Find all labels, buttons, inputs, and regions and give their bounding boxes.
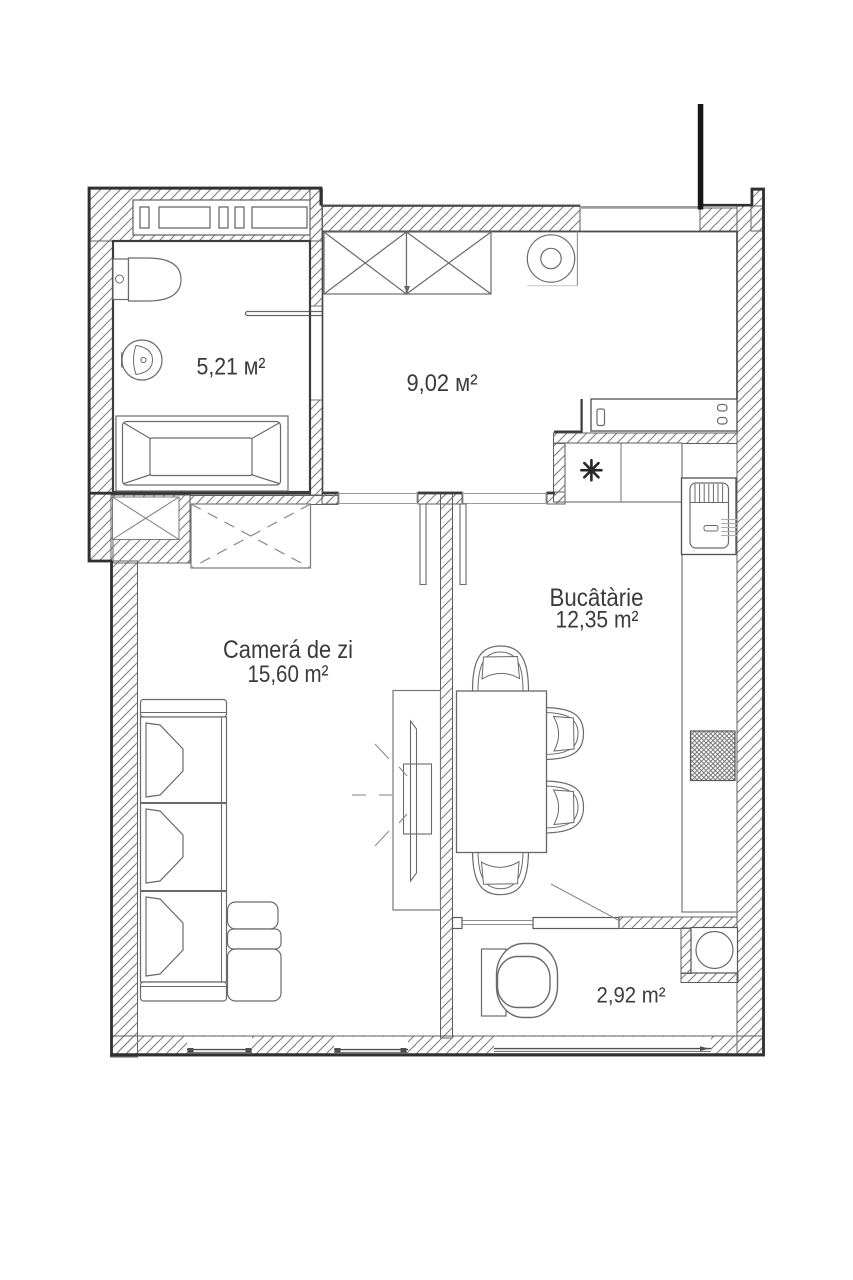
svg-text:5,21 м²: 5,21 м² [197, 354, 266, 381]
svg-text:12,35 m²: 12,35 m² [556, 607, 639, 634]
svg-text:2,92 m²: 2,92 m² [597, 983, 666, 1008]
svg-text:Camerá de zi: Camerá de zi [223, 636, 353, 664]
svg-text:15,60 m²: 15,60 m² [248, 661, 329, 688]
svg-text:9,02 м²: 9,02 м² [407, 370, 478, 397]
